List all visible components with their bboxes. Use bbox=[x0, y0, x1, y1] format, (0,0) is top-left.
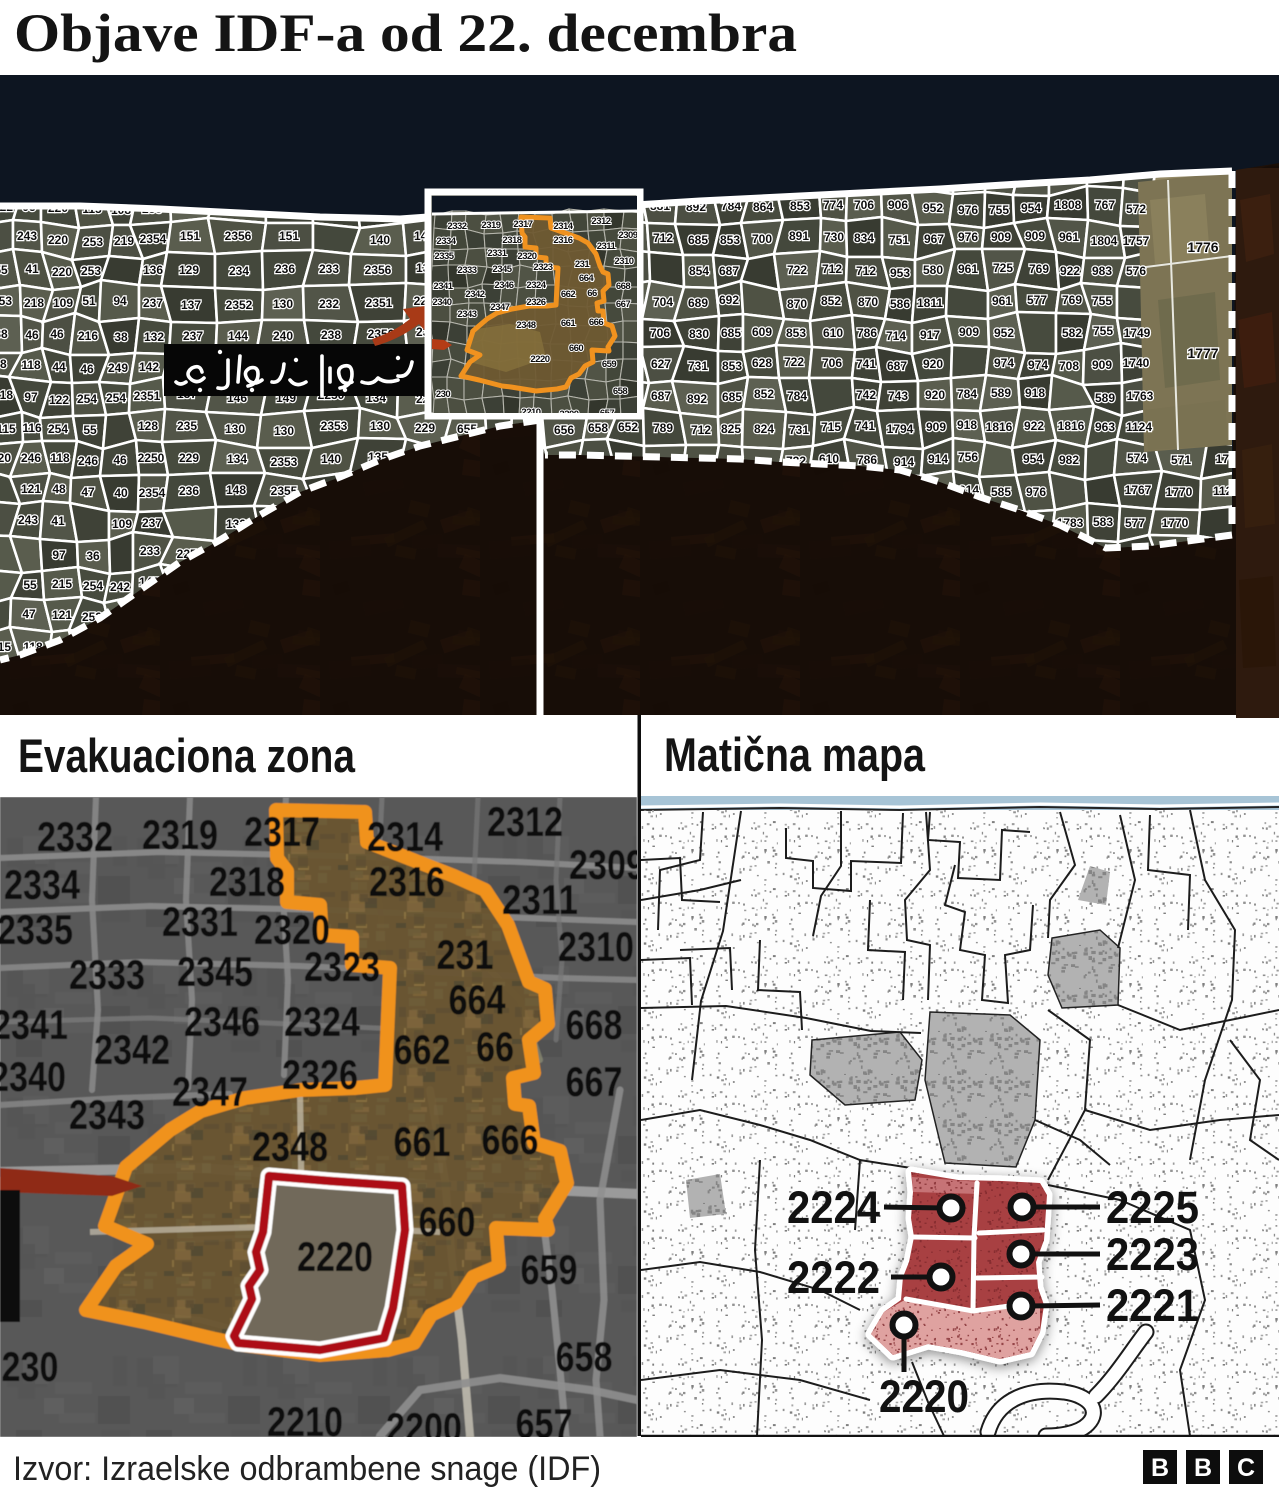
svg-text:55: 55 bbox=[23, 578, 37, 592]
svg-text:254: 254 bbox=[106, 391, 126, 405]
svg-text:232: 232 bbox=[319, 297, 339, 311]
svg-text:2319: 2319 bbox=[142, 811, 218, 858]
svg-text:610: 610 bbox=[823, 326, 843, 340]
svg-text:2332: 2332 bbox=[447, 221, 466, 232]
svg-text:2316: 2316 bbox=[369, 858, 445, 905]
svg-text:2342: 2342 bbox=[465, 289, 484, 300]
svg-text:706: 706 bbox=[822, 356, 842, 370]
svg-text:580: 580 bbox=[923, 263, 943, 277]
svg-text:219: 219 bbox=[114, 234, 134, 248]
svg-text:115: 115 bbox=[0, 422, 16, 436]
svg-text:237: 237 bbox=[142, 516, 162, 530]
svg-text:234: 234 bbox=[229, 264, 249, 278]
svg-text:66: 66 bbox=[476, 1023, 514, 1070]
svg-text:963: 963 bbox=[1095, 420, 1115, 434]
svg-text:253: 253 bbox=[83, 235, 103, 249]
svg-text:659: 659 bbox=[521, 1246, 578, 1293]
svg-text:2352: 2352 bbox=[226, 298, 253, 312]
svg-text:2354: 2354 bbox=[140, 232, 167, 246]
svg-text:140: 140 bbox=[370, 233, 390, 247]
svg-text:41: 41 bbox=[51, 514, 65, 528]
svg-text:231: 231 bbox=[437, 931, 494, 978]
svg-text:254: 254 bbox=[83, 579, 103, 593]
svg-text:144: 144 bbox=[228, 329, 248, 343]
svg-text:151: 151 bbox=[279, 229, 299, 243]
svg-text:577: 577 bbox=[1027, 293, 1047, 307]
svg-text:658: 658 bbox=[613, 386, 628, 397]
svg-text:253: 253 bbox=[81, 264, 101, 278]
svg-text:2331: 2331 bbox=[162, 898, 238, 945]
svg-text:2220: 2220 bbox=[530, 354, 549, 365]
svg-text:240: 240 bbox=[273, 329, 293, 343]
svg-text:2348: 2348 bbox=[252, 1123, 328, 1170]
svg-text:118: 118 bbox=[50, 451, 70, 465]
svg-text:137: 137 bbox=[181, 298, 201, 312]
svg-text:Objave IDF-a od 22. decembra: Objave IDF-a od 22. decembra bbox=[14, 3, 797, 63]
svg-text:909: 909 bbox=[1025, 229, 1045, 243]
svg-text:2345: 2345 bbox=[177, 948, 253, 995]
svg-text:1808: 1808 bbox=[1055, 198, 1082, 212]
svg-text:2346: 2346 bbox=[184, 998, 260, 1045]
svg-text:Matična mapa: Matična mapa bbox=[664, 728, 926, 781]
svg-text:914: 914 bbox=[928, 452, 948, 466]
svg-text:660: 660 bbox=[419, 1198, 476, 1245]
svg-text:1816: 1816 bbox=[1058, 419, 1085, 433]
svg-text:1763: 1763 bbox=[1127, 389, 1154, 403]
svg-text:1777: 1777 bbox=[1187, 345, 1218, 361]
svg-text:983: 983 bbox=[1092, 264, 1112, 278]
svg-text:254: 254 bbox=[48, 422, 68, 436]
svg-text:130: 130 bbox=[273, 297, 293, 311]
svg-text:692: 692 bbox=[719, 293, 739, 307]
svg-text:755: 755 bbox=[989, 203, 1009, 217]
svg-text:215: 215 bbox=[52, 577, 72, 591]
svg-text:2317: 2317 bbox=[244, 808, 320, 855]
svg-text:2309: 2309 bbox=[618, 230, 637, 241]
svg-text:741: 741 bbox=[855, 419, 875, 433]
svg-text:2223: 2223 bbox=[1106, 1229, 1199, 1280]
svg-text:2348: 2348 bbox=[516, 320, 535, 331]
svg-text:576: 576 bbox=[1126, 264, 1146, 278]
svg-text:583: 583 bbox=[1093, 515, 1113, 529]
svg-text:2220: 2220 bbox=[297, 1233, 373, 1280]
svg-text:961: 961 bbox=[958, 262, 978, 276]
svg-text:254: 254 bbox=[77, 392, 97, 406]
svg-text:235: 235 bbox=[177, 419, 197, 433]
svg-text:730: 730 bbox=[824, 230, 844, 244]
svg-text:870: 870 bbox=[787, 297, 807, 311]
svg-text:892: 892 bbox=[687, 392, 707, 406]
svg-text:954: 954 bbox=[1021, 201, 1041, 215]
svg-text:229: 229 bbox=[415, 421, 435, 435]
svg-text:667: 667 bbox=[616, 299, 631, 310]
svg-text:1749: 1749 bbox=[1124, 326, 1151, 340]
svg-text:237: 237 bbox=[183, 329, 203, 343]
svg-text:1794: 1794 bbox=[887, 422, 914, 436]
svg-text:2334: 2334 bbox=[436, 236, 456, 247]
svg-text:1770: 1770 bbox=[1162, 516, 1189, 530]
svg-text:109: 109 bbox=[53, 296, 73, 310]
svg-text:130: 130 bbox=[274, 424, 294, 438]
svg-text:2333: 2333 bbox=[457, 265, 476, 276]
svg-text:628: 628 bbox=[752, 356, 772, 370]
svg-text:2316: 2316 bbox=[553, 235, 572, 246]
svg-text:853: 853 bbox=[722, 359, 742, 373]
svg-text:236: 236 bbox=[275, 262, 295, 276]
svg-text:784: 784 bbox=[787, 389, 807, 403]
svg-text:2341: 2341 bbox=[0, 1001, 68, 1048]
svg-text:974: 974 bbox=[994, 356, 1014, 370]
svg-text:586: 586 bbox=[890, 297, 910, 311]
svg-text:751: 751 bbox=[889, 233, 909, 247]
svg-text:237: 237 bbox=[143, 296, 163, 310]
svg-text:231: 231 bbox=[575, 259, 591, 270]
svg-text:687: 687 bbox=[651, 389, 671, 403]
svg-text:1776: 1776 bbox=[1187, 239, 1218, 255]
svg-text:756: 756 bbox=[958, 450, 978, 464]
svg-text:961: 961 bbox=[1059, 230, 1079, 244]
svg-text:2341: 2341 bbox=[433, 281, 453, 292]
svg-text:755: 755 bbox=[1093, 324, 1113, 338]
svg-text:589: 589 bbox=[991, 386, 1011, 400]
svg-text:712: 712 bbox=[653, 231, 673, 245]
svg-text:2347: 2347 bbox=[490, 302, 509, 313]
svg-text:755: 755 bbox=[1092, 294, 1112, 308]
svg-text:2332: 2332 bbox=[37, 813, 113, 860]
svg-text:236: 236 bbox=[179, 484, 199, 498]
svg-text:659: 659 bbox=[602, 359, 617, 370]
svg-text:116: 116 bbox=[22, 421, 42, 435]
svg-text:142: 142 bbox=[139, 360, 159, 374]
svg-text:40: 40 bbox=[114, 486, 128, 500]
svg-text:151: 151 bbox=[180, 229, 200, 243]
svg-text:2312: 2312 bbox=[487, 798, 563, 845]
svg-text:233: 233 bbox=[140, 544, 160, 558]
svg-text:2222: 2222 bbox=[787, 1252, 880, 1303]
svg-text:712: 712 bbox=[856, 264, 876, 278]
svg-text:609: 609 bbox=[752, 325, 772, 339]
svg-text:47: 47 bbox=[81, 485, 95, 499]
svg-text:982: 982 bbox=[1059, 453, 1079, 467]
svg-text:1767: 1767 bbox=[1125, 483, 1152, 497]
svg-text:128: 128 bbox=[138, 419, 158, 433]
svg-text:230: 230 bbox=[436, 389, 451, 400]
svg-text:976: 976 bbox=[958, 230, 978, 244]
svg-text:94: 94 bbox=[113, 294, 127, 308]
svg-text:664: 664 bbox=[579, 273, 595, 284]
svg-text:220: 220 bbox=[0, 451, 11, 465]
svg-text:2310: 2310 bbox=[614, 256, 633, 267]
svg-text:976: 976 bbox=[958, 203, 978, 217]
svg-text:668: 668 bbox=[616, 281, 631, 292]
svg-text:909: 909 bbox=[1092, 358, 1112, 372]
svg-text:134: 134 bbox=[227, 452, 247, 466]
svg-text:2318: 2318 bbox=[502, 235, 521, 246]
svg-text:662: 662 bbox=[561, 289, 576, 300]
svg-text:1816: 1816 bbox=[986, 420, 1013, 434]
svg-text:1740: 1740 bbox=[1123, 356, 1150, 370]
svg-text:2310: 2310 bbox=[558, 923, 634, 970]
svg-text:B: B bbox=[1194, 1454, 1212, 1482]
svg-text:953: 953 bbox=[890, 266, 910, 280]
svg-text:55: 55 bbox=[0, 263, 8, 277]
svg-text:246: 246 bbox=[21, 451, 41, 465]
svg-text:2346: 2346 bbox=[494, 280, 513, 291]
svg-text:97: 97 bbox=[24, 390, 38, 404]
svg-text:685: 685 bbox=[722, 390, 742, 404]
svg-text:922: 922 bbox=[1060, 264, 1080, 278]
svg-text:44: 44 bbox=[52, 360, 66, 374]
svg-text:1770: 1770 bbox=[1166, 485, 1193, 499]
svg-text:46: 46 bbox=[113, 453, 127, 467]
svg-text:2333: 2333 bbox=[69, 951, 145, 998]
svg-text:2354: 2354 bbox=[139, 486, 166, 500]
svg-text:48: 48 bbox=[0, 357, 7, 371]
svg-text:2340: 2340 bbox=[432, 297, 451, 308]
svg-text:920: 920 bbox=[925, 388, 945, 402]
svg-text:976: 976 bbox=[1026, 485, 1046, 499]
svg-text:2324: 2324 bbox=[526, 280, 546, 291]
svg-text:132: 132 bbox=[144, 330, 164, 344]
svg-text:952: 952 bbox=[923, 201, 943, 215]
svg-text:253: 253 bbox=[0, 294, 12, 308]
svg-text:2334: 2334 bbox=[4, 861, 81, 908]
svg-text:1811: 1811 bbox=[917, 296, 943, 310]
svg-text:571: 571 bbox=[1171, 453, 1191, 467]
svg-text:129: 129 bbox=[179, 263, 199, 277]
svg-text:742: 742 bbox=[856, 388, 876, 402]
svg-text:2221: 2221 bbox=[1106, 1280, 1199, 1331]
svg-text:658: 658 bbox=[588, 421, 608, 435]
svg-text:2326: 2326 bbox=[526, 297, 545, 308]
svg-text:712: 712 bbox=[691, 423, 711, 437]
svg-text:731: 731 bbox=[789, 423, 809, 437]
svg-text:2220: 2220 bbox=[879, 1371, 969, 1422]
svg-text:687: 687 bbox=[887, 359, 907, 373]
svg-text:46: 46 bbox=[50, 327, 64, 341]
svg-text:2320: 2320 bbox=[517, 251, 536, 262]
svg-text:2342: 2342 bbox=[94, 1026, 170, 1073]
svg-text:243: 243 bbox=[18, 513, 38, 527]
svg-text:2326: 2326 bbox=[282, 1051, 358, 1098]
svg-text:656: 656 bbox=[554, 423, 574, 437]
svg-text:2314: 2314 bbox=[553, 221, 573, 232]
svg-text:B: B bbox=[1151, 1454, 1169, 1482]
svg-text:825: 825 bbox=[721, 422, 741, 436]
svg-text:38: 38 bbox=[114, 330, 128, 344]
svg-text:216: 216 bbox=[78, 329, 98, 343]
svg-text:918: 918 bbox=[1025, 386, 1045, 400]
svg-text:708: 708 bbox=[1059, 359, 1079, 373]
svg-text:922: 922 bbox=[1024, 419, 1044, 433]
svg-text:715: 715 bbox=[821, 420, 841, 434]
svg-text:2309: 2309 bbox=[569, 841, 645, 888]
svg-text:687: 687 bbox=[719, 264, 739, 278]
svg-text:685: 685 bbox=[688, 233, 708, 247]
svg-text:627: 627 bbox=[651, 357, 671, 371]
svg-text:130: 130 bbox=[225, 422, 245, 436]
svg-text:2331: 2331 bbox=[487, 248, 507, 259]
svg-text:658: 658 bbox=[556, 1333, 613, 1380]
svg-text:229: 229 bbox=[179, 451, 199, 465]
svg-text:722: 722 bbox=[784, 355, 804, 369]
svg-text:136: 136 bbox=[143, 263, 163, 277]
svg-text:230: 230 bbox=[2, 1343, 59, 1390]
svg-text:974: 974 bbox=[1028, 358, 1048, 372]
svg-text:2335: 2335 bbox=[434, 251, 454, 262]
svg-text:148: 148 bbox=[226, 483, 246, 497]
svg-text:130: 130 bbox=[370, 419, 390, 433]
svg-text:55: 55 bbox=[83, 423, 97, 437]
svg-text:909: 909 bbox=[959, 325, 979, 339]
svg-text:215: 215 bbox=[0, 640, 11, 654]
svg-text:891: 891 bbox=[789, 229, 809, 243]
svg-text:2312: 2312 bbox=[591, 216, 610, 227]
svg-text:774: 774 bbox=[823, 198, 843, 212]
svg-text:589: 589 bbox=[1095, 391, 1115, 405]
svg-text:2340: 2340 bbox=[0, 1053, 66, 1100]
svg-text:731: 731 bbox=[688, 359, 708, 373]
svg-text:917: 917 bbox=[920, 328, 940, 342]
svg-text:2319: 2319 bbox=[481, 220, 500, 231]
svg-text:661: 661 bbox=[394, 1118, 451, 1165]
svg-text:784: 784 bbox=[957, 387, 977, 401]
svg-text:660: 660 bbox=[569, 343, 584, 354]
svg-text:2351: 2351 bbox=[134, 389, 161, 403]
svg-text:918: 918 bbox=[957, 418, 977, 432]
svg-text:582: 582 bbox=[1062, 326, 1082, 340]
svg-text:909: 909 bbox=[991, 230, 1011, 244]
svg-text:852: 852 bbox=[821, 294, 841, 308]
svg-text:2225: 2225 bbox=[1106, 1182, 1199, 1233]
svg-text:824: 824 bbox=[754, 422, 774, 436]
svg-text:220: 220 bbox=[52, 265, 72, 279]
svg-text:767: 767 bbox=[1095, 198, 1115, 212]
svg-text:652: 652 bbox=[618, 420, 638, 434]
svg-text:C: C bbox=[1237, 1454, 1255, 1482]
svg-text:685: 685 bbox=[721, 326, 741, 340]
svg-text:700: 700 bbox=[752, 232, 772, 246]
svg-text:2335: 2335 bbox=[0, 906, 73, 953]
svg-text:38: 38 bbox=[0, 327, 8, 341]
svg-text:1804: 1804 bbox=[1091, 234, 1118, 248]
svg-text:585: 585 bbox=[991, 485, 1011, 499]
svg-text:238: 238 bbox=[321, 328, 341, 342]
svg-text:2345: 2345 bbox=[492, 264, 512, 275]
svg-text:48: 48 bbox=[52, 482, 66, 496]
svg-text:967: 967 bbox=[924, 232, 944, 246]
svg-text:961: 961 bbox=[992, 294, 1012, 308]
svg-text:830: 830 bbox=[689, 327, 709, 341]
svg-text:2353: 2353 bbox=[271, 455, 298, 469]
svg-text:97: 97 bbox=[52, 548, 66, 562]
svg-text:2324: 2324 bbox=[284, 998, 361, 1045]
svg-text:233: 233 bbox=[319, 262, 339, 276]
svg-text:714: 714 bbox=[886, 329, 906, 343]
svg-text:2323: 2323 bbox=[533, 262, 552, 273]
svg-text:46: 46 bbox=[25, 328, 39, 342]
svg-text:2323: 2323 bbox=[304, 943, 380, 990]
svg-text:41: 41 bbox=[25, 262, 39, 276]
svg-text:2353: 2353 bbox=[321, 419, 348, 433]
svg-text:662: 662 bbox=[394, 1026, 451, 1073]
svg-text:572: 572 bbox=[1126, 202, 1146, 216]
svg-text:2356: 2356 bbox=[365, 263, 392, 277]
svg-text:852: 852 bbox=[754, 387, 774, 401]
svg-text:725: 725 bbox=[993, 261, 1013, 275]
svg-text:249: 249 bbox=[108, 361, 128, 375]
svg-text:246: 246 bbox=[78, 454, 98, 468]
svg-text:51: 51 bbox=[82, 294, 96, 308]
svg-text:786: 786 bbox=[857, 326, 877, 340]
svg-text:242: 242 bbox=[110, 580, 130, 594]
svg-text:769: 769 bbox=[1029, 262, 1049, 276]
svg-text:122: 122 bbox=[49, 393, 69, 407]
svg-text:704: 704 bbox=[653, 295, 673, 309]
svg-text:577: 577 bbox=[1125, 516, 1145, 530]
svg-text:2343: 2343 bbox=[69, 1091, 145, 1138]
svg-text:952: 952 bbox=[994, 326, 1014, 340]
svg-text:661: 661 bbox=[561, 318, 577, 329]
svg-text:854: 854 bbox=[689, 264, 709, 278]
svg-text:853: 853 bbox=[786, 326, 806, 340]
svg-text:667: 667 bbox=[566, 1058, 623, 1105]
svg-text:853: 853 bbox=[790, 199, 810, 213]
svg-text:666: 666 bbox=[482, 1116, 539, 1163]
svg-text:769: 769 bbox=[1062, 293, 1082, 307]
svg-text:909: 909 bbox=[926, 420, 946, 434]
svg-text:954: 954 bbox=[1023, 452, 1043, 466]
svg-text:2347: 2347 bbox=[172, 1068, 248, 1115]
svg-text:218: 218 bbox=[24, 296, 44, 310]
svg-text:2317: 2317 bbox=[513, 219, 532, 230]
svg-text:689: 689 bbox=[688, 296, 708, 310]
svg-text:920: 920 bbox=[923, 357, 943, 371]
svg-text:664: 664 bbox=[449, 976, 507, 1023]
svg-text:Izvor: Izraelske odbrambene sn: Izvor: Izraelske odbrambene snage (IDF) bbox=[13, 1450, 601, 1488]
svg-text:853: 853 bbox=[720, 233, 740, 247]
svg-text:140: 140 bbox=[321, 452, 341, 466]
svg-text:1124: 1124 bbox=[1126, 420, 1152, 434]
svg-text:706: 706 bbox=[650, 326, 670, 340]
svg-text:741: 741 bbox=[856, 357, 876, 371]
svg-text:668: 668 bbox=[566, 1001, 623, 1048]
svg-text:864: 864 bbox=[753, 200, 773, 214]
svg-text:706: 706 bbox=[854, 198, 874, 212]
svg-text:118: 118 bbox=[21, 358, 41, 372]
svg-text:2311: 2311 bbox=[597, 241, 617, 252]
svg-text:789: 789 bbox=[653, 421, 673, 435]
svg-text:2351: 2351 bbox=[366, 296, 393, 310]
svg-text:121: 121 bbox=[21, 482, 41, 496]
svg-text:870: 870 bbox=[858, 295, 878, 309]
svg-text:906: 906 bbox=[888, 198, 908, 212]
svg-text:218: 218 bbox=[0, 388, 13, 402]
svg-text:36: 36 bbox=[86, 549, 100, 563]
svg-text:66: 66 bbox=[587, 288, 597, 299]
svg-text:2311: 2311 bbox=[502, 876, 578, 923]
svg-text:121: 121 bbox=[52, 608, 72, 622]
svg-text:220: 220 bbox=[48, 233, 68, 247]
svg-text:243: 243 bbox=[17, 229, 37, 243]
svg-text:46: 46 bbox=[80, 362, 94, 376]
svg-text:834: 834 bbox=[854, 231, 874, 245]
svg-text:2250: 2250 bbox=[138, 451, 165, 465]
svg-text:722: 722 bbox=[787, 263, 807, 277]
svg-text:574: 574 bbox=[1127, 451, 1147, 465]
svg-text:Evakuaciona zona: Evakuaciona zona bbox=[18, 729, 356, 782]
svg-text:1757: 1757 bbox=[1123, 234, 1150, 248]
